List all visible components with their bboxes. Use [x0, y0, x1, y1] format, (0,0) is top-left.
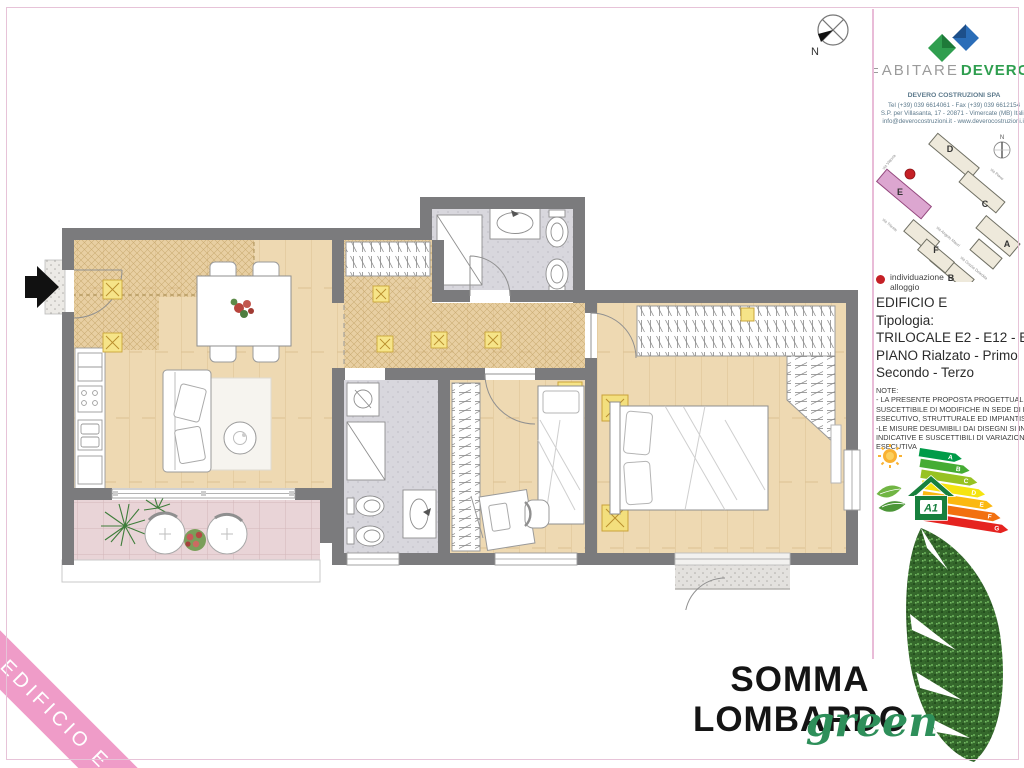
company-web: info@deverocostruzioni.it - www.deveroco… [872, 118, 1024, 126]
kitchen [75, 348, 105, 490]
note-line: SUSCETTIBILE DI MODIFICHE IN SEDE DI PRO… [876, 405, 1024, 414]
building-E [877, 169, 932, 219]
label-C: C [982, 199, 989, 209]
svg-text:N: N [1000, 135, 1004, 141]
company-phone: Tel (+39) 039 6614061 - Fax (+39) 039 66… [872, 102, 1024, 110]
brand-word-devero: DEVERO [961, 62, 1024, 79]
toilet-tank [347, 498, 354, 514]
brand-word-abitare: ABITARE [882, 62, 959, 79]
terrace-railing [62, 560, 320, 582]
brand-rule-left [874, 68, 878, 73]
company-address: S.P. per Villasanta, 17 - 20871 - Vimerc… [872, 110, 1024, 118]
company-name: DEVERO COSTRUZIONI SPA [872, 92, 1024, 100]
note-line: -LE MISURE DESUMIBILI DAI DISEGNI SI INT… [876, 424, 1024, 433]
svg-text:via Vittoria: via Vittoria [881, 153, 897, 171]
svg-text:via Trieste: via Trieste [881, 217, 899, 233]
label-B: B [948, 273, 955, 282]
corner-ribbon: EDIFICIO E [0, 601, 169, 768]
unit-location-dot [905, 169, 915, 179]
svg-text:via Piave: via Piave [989, 167, 1005, 182]
sofa-area [163, 370, 271, 472]
sidebar: ABITARE DEVERO DEVERO COSTRUZIONI SPA Te… [874, 0, 1024, 768]
legend-line2: alloggio [890, 282, 944, 292]
compass-icon: N [803, 8, 859, 64]
company-info: DEVERO COSTRUZIONI SPA Tel (+39) 039 661… [872, 92, 1024, 126]
bench [831, 425, 841, 483]
legend: individuazione alloggio [876, 272, 944, 292]
compass-label: N [811, 46, 819, 58]
bidet-tap [549, 210, 565, 217]
brand-row: ABITARE DEVERO [874, 62, 1024, 79]
project-tagline: green [780, 698, 938, 746]
label-A: A [1004, 239, 1011, 249]
floor-plan [25, 190, 865, 610]
ribbon-label: EDIFICIO E [0, 655, 115, 768]
terrace-flower-pot [184, 529, 206, 551]
toilet [546, 259, 568, 289]
bidet [546, 217, 568, 247]
legend-line1: individuazione [890, 272, 944, 282]
page: { "plan": { "compass": "N" }, "ribbon": … [0, 0, 1024, 768]
pillow [624, 461, 653, 505]
site-map: E D C A B F via Vittoria via Piave via A… [874, 132, 1024, 282]
headboard [610, 402, 620, 514]
label-E: E [897, 187, 903, 197]
coffee-table [224, 422, 256, 454]
details-title: EDIFICIO E [876, 294, 1024, 312]
sink [403, 490, 436, 538]
note-line: - LA PRESENTE PROPOSTA PROGETTUALE E' [876, 395, 1024, 404]
hall-wardrobe [346, 242, 430, 276]
energy-bars: A B C D E F G [909, 448, 1019, 534]
legend-dot-icon [876, 275, 885, 284]
unit-details: EDIFICIO E Tipologia: TRILOCALE E2 - E12… [876, 294, 1024, 382]
site-buildings [877, 133, 1020, 282]
sitemap-compass-icon: N [994, 135, 1010, 158]
bidet-tap [347, 528, 354, 544]
building-D [929, 133, 979, 178]
label-D: D [947, 144, 954, 154]
light [741, 308, 754, 321]
details-piano1: PIANO Rialzato - Primo [876, 347, 1024, 365]
details-tipologia: TRILOCALE E2 - E12 - E36 - E46 [876, 329, 1024, 347]
details-piano2: Secondo - Terzo [876, 364, 1024, 382]
pillow [623, 411, 653, 455]
energy-house-icon: A1 [908, 476, 954, 520]
svg-text:via Angelo Mauri: via Angelo Mauri [935, 225, 961, 248]
energy-class-value: A1 [923, 503, 938, 515]
note-line: ESECUTIVO, STRUTTURALE ED IMPIANTISTICO. [876, 414, 1024, 423]
sun-icon [878, 444, 902, 468]
leaves-icon [876, 485, 906, 512]
pillow [543, 391, 579, 413]
note-title: NOTE: [876, 386, 1024, 395]
details-tipologia-label: Tipologia: [876, 312, 1024, 330]
label-F: F [933, 245, 939, 255]
brand-logo-icon [874, 20, 1024, 64]
